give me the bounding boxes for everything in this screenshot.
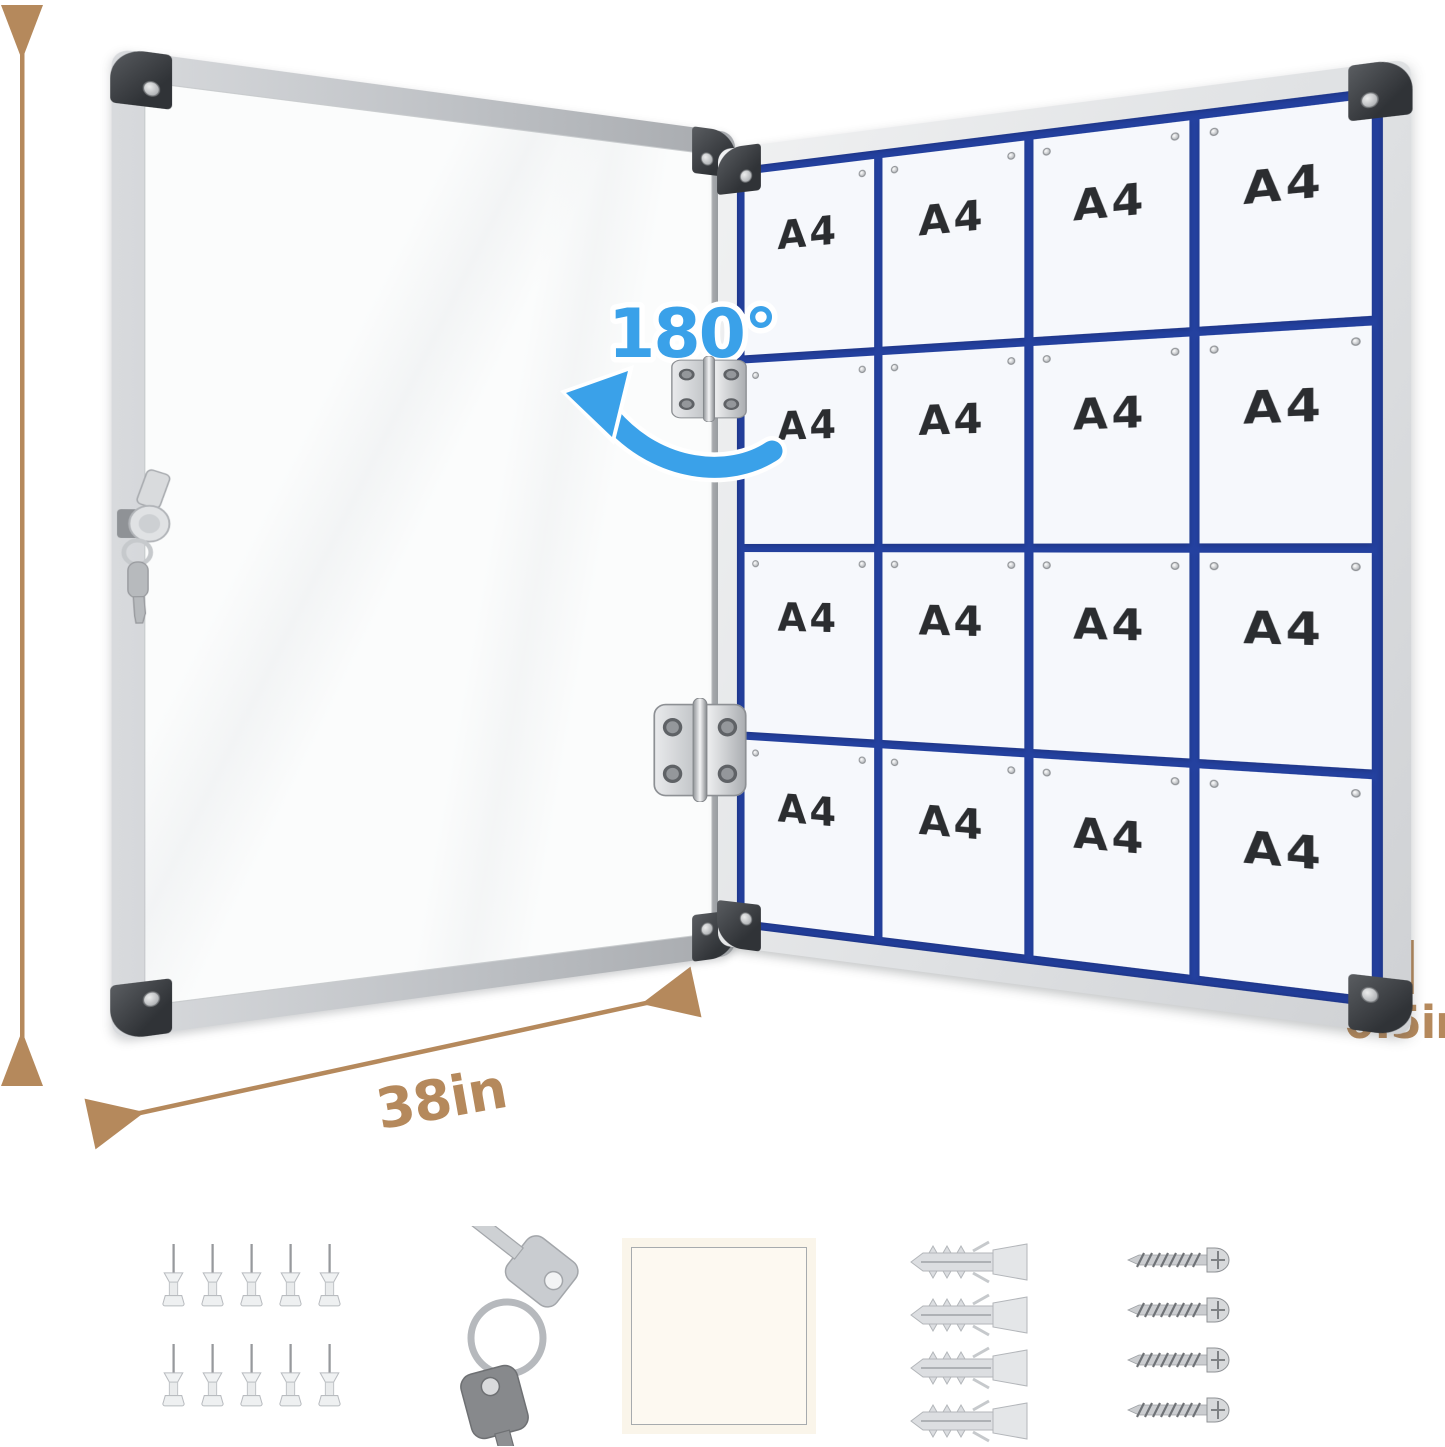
height-dimension-arrow xyxy=(0,0,50,1100)
corner-screw-icon xyxy=(143,990,160,1008)
paper-label: A4 xyxy=(1033,599,1189,652)
paper-pin-icon xyxy=(859,561,866,568)
pushpin-icon xyxy=(280,1244,301,1306)
paper-pin-icon xyxy=(1008,766,1016,774)
wall-anchor-icon xyxy=(911,1242,1027,1282)
a4-paper: A4 xyxy=(745,552,875,740)
paper-label: A4 xyxy=(882,596,1024,647)
wall-anchors-group xyxy=(903,1240,1038,1447)
paper-label: A4 xyxy=(1200,601,1372,657)
paper-pin-icon xyxy=(891,363,898,371)
board-corner xyxy=(1348,974,1412,1038)
corner-screw-icon xyxy=(740,169,752,184)
board-face: A4A4A4A4A4A4A4A4A4A4A4A4A4A4A4A4 xyxy=(737,87,1383,1008)
paper-pin-icon xyxy=(859,169,866,177)
key-icon xyxy=(453,1226,582,1312)
a4-paper: A4 xyxy=(1033,336,1189,543)
paper-pin-icon xyxy=(752,561,759,568)
paper-pin-icon xyxy=(1042,147,1050,156)
pushpin-icon xyxy=(241,1244,262,1306)
paper-pin-icon xyxy=(1171,347,1180,356)
board-corner xyxy=(1348,57,1412,121)
cabinet-door xyxy=(112,48,735,1040)
a4-paper: A4 xyxy=(882,346,1024,543)
board-corner xyxy=(717,143,761,195)
a4-paper: A4 xyxy=(882,552,1024,749)
corner-screw-icon xyxy=(701,922,713,937)
screw-icon xyxy=(1128,1298,1229,1322)
corner-screw-icon xyxy=(143,80,160,98)
screw-icon xyxy=(1128,1398,1229,1422)
pushpins-group xyxy=(152,1242,364,1442)
a4-paper: A4 xyxy=(1200,98,1372,326)
screw-icon xyxy=(1128,1248,1229,1272)
paper-label: A4 xyxy=(1033,385,1189,441)
paper-label: A4 xyxy=(745,203,875,261)
paper-pin-icon xyxy=(1209,127,1218,136)
pushpin-icon xyxy=(163,1344,184,1406)
paper-pin-icon xyxy=(1042,562,1050,570)
paper-pin-icon xyxy=(891,561,898,568)
paper-pin-icon xyxy=(1209,780,1218,789)
paper-pin-icon xyxy=(1008,357,1016,365)
corner-screw-icon xyxy=(1361,91,1379,109)
pushpin-icon xyxy=(319,1244,340,1306)
a4-paper: A4 xyxy=(1200,769,1372,997)
paper-label: A4 xyxy=(882,793,1024,852)
paper-label: A4 xyxy=(745,594,875,642)
door-corner xyxy=(110,47,172,110)
paper-label: A4 xyxy=(1200,818,1372,885)
a4-paper: A4 xyxy=(1033,120,1189,336)
a4-grid: A4A4A4A4A4A4A4A4A4A4A4A4A4A4A4A4 xyxy=(745,98,1372,997)
paper-pin-icon xyxy=(859,756,866,764)
wall-anchor-icon xyxy=(911,1295,1027,1335)
corner-screw-icon xyxy=(1361,986,1379,1004)
paper-pin-icon xyxy=(1008,562,1016,570)
a4-paper: A4 xyxy=(1033,552,1189,759)
paper-label: A4 xyxy=(745,783,875,839)
pushpin-icon xyxy=(241,1344,262,1406)
screw-icon xyxy=(1128,1348,1229,1372)
paper-label: A4 xyxy=(882,393,1024,446)
pushpin-icon xyxy=(202,1344,223,1406)
paper-pin-icon xyxy=(1209,345,1218,354)
adhesive-pad-icon xyxy=(622,1238,816,1434)
corner-screw-icon xyxy=(701,152,713,167)
paper-pin-icon xyxy=(1351,337,1361,346)
paper-label: A4 xyxy=(1200,150,1372,220)
a4-paper: A4 xyxy=(882,749,1024,955)
pushpin-icon xyxy=(319,1344,340,1406)
a4-paper: A4 xyxy=(1200,552,1372,770)
hinge-top-icon xyxy=(670,356,748,422)
key-icon xyxy=(458,1363,548,1446)
paper-label: A4 xyxy=(882,187,1024,249)
paper-pin-icon xyxy=(1209,563,1218,571)
paper-label: A4 xyxy=(1033,805,1189,868)
keys-icon xyxy=(415,1226,620,1446)
wall-anchor-icon xyxy=(911,1401,1027,1441)
board-corner xyxy=(717,900,761,952)
hinge-bottom-icon xyxy=(652,698,748,802)
paper-label: A4 xyxy=(1033,169,1189,234)
a4-paper: A4 xyxy=(1200,325,1372,543)
a4-paper: A4 xyxy=(882,141,1024,347)
a4-paper: A4 xyxy=(1033,758,1189,974)
pushpin-icon xyxy=(202,1244,223,1306)
door-corner xyxy=(110,978,172,1041)
paper-pin-icon xyxy=(1042,355,1050,363)
pushpin-icon xyxy=(280,1344,301,1406)
paper-pin-icon xyxy=(1171,132,1180,141)
paper-pin-icon xyxy=(1171,562,1180,570)
pushpin-icon xyxy=(163,1244,184,1306)
product-dimension-diagram: 38in A4A4A4A4A4A4A4A4A4A4A4A4A4A4A4A4 xyxy=(0,0,1445,1447)
paper-pin-icon xyxy=(1351,563,1361,572)
paper-pin-icon xyxy=(891,165,898,173)
paper-pin-icon xyxy=(1351,789,1361,798)
corner-screw-icon xyxy=(740,912,752,927)
wall-anchor-icon xyxy=(911,1348,1027,1388)
paper-pin-icon xyxy=(752,749,759,757)
paper-pin-icon xyxy=(891,759,898,767)
door-glass xyxy=(144,81,712,1006)
screws-group xyxy=(1124,1244,1242,1446)
paper-pin-icon xyxy=(1008,151,1016,160)
paper-pin-icon xyxy=(1042,769,1050,777)
key-ring-icon xyxy=(471,1302,543,1374)
a4-paper: A4 xyxy=(745,740,875,936)
door-lock-icon xyxy=(114,468,189,625)
notice-board: A4A4A4A4A4A4A4A4A4A4A4A4A4A4A4A4 xyxy=(718,59,1411,1036)
paper-pin-icon xyxy=(1171,777,1180,786)
paper-label: A4 xyxy=(1200,377,1372,436)
